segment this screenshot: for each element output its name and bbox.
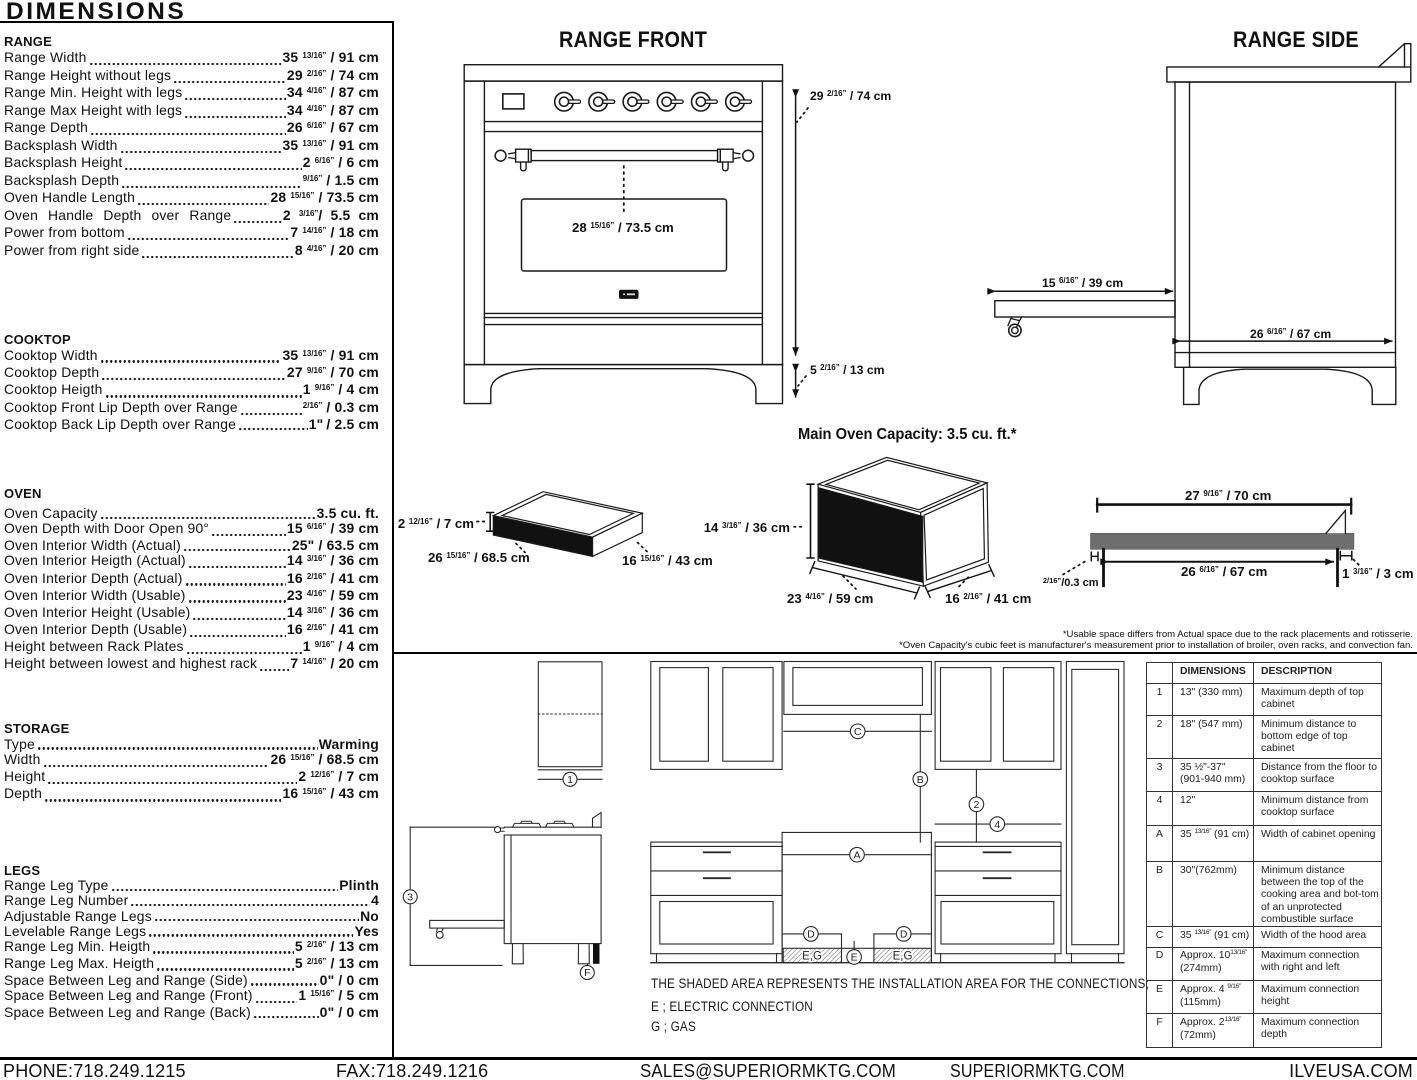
svg-text:1: 1 [567,774,573,786]
svg-text:E,G: E,G [893,951,913,963]
svg-text:C: C [854,726,862,738]
svg-text:D: D [807,929,815,941]
svg-text:2: 2 [973,799,979,811]
svg-text:E,G: E,G [802,951,822,963]
svg-text:B: B [917,774,924,786]
svg-text:F: F [584,967,590,979]
svg-text:A: A [853,849,860,861]
svg-text:D: D [900,929,908,941]
svg-text:4: 4 [994,819,1000,831]
svg-text:E: E [851,952,858,964]
svg-text:3: 3 [407,892,413,904]
